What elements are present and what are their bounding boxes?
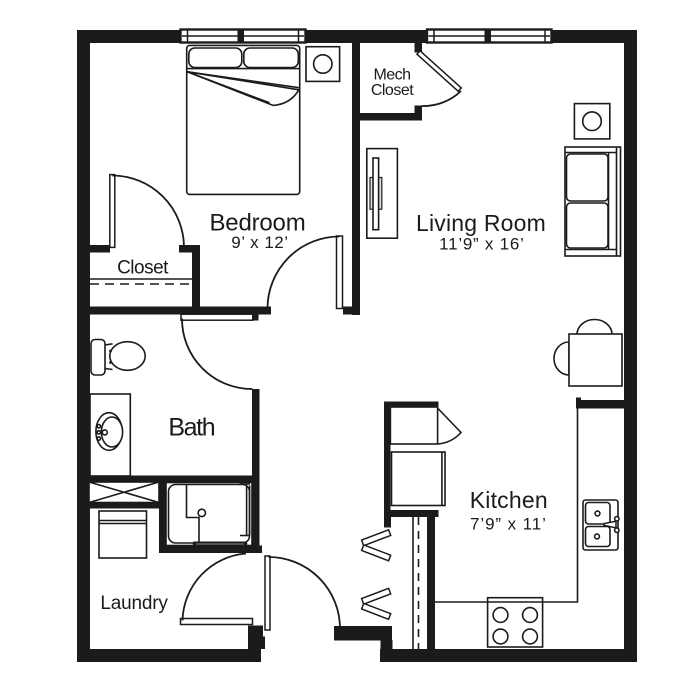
svg-text:9’ x 12’: 9’ x 12’: [231, 233, 288, 252]
svg-text:Kitchen: Kitchen: [470, 487, 548, 513]
svg-text:Laundry: Laundry: [100, 593, 168, 614]
svg-text:Closet: Closet: [117, 258, 169, 279]
svg-text:11’9” x 16’: 11’9” x 16’: [439, 235, 524, 254]
svg-text:Bath: Bath: [168, 414, 214, 442]
svg-text:7’9” x 11’: 7’9” x 11’: [470, 514, 547, 533]
svg-text:Living Room: Living Room: [416, 210, 546, 236]
svg-text:Closet: Closet: [371, 82, 414, 99]
